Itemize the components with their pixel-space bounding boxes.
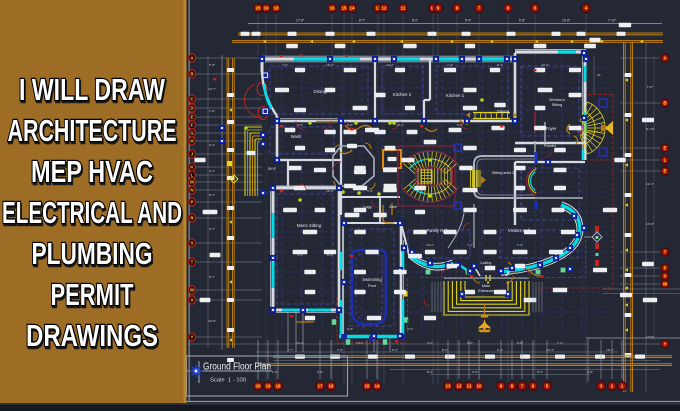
- svg-text:6′-8″: 6′-8″: [519, 19, 526, 23]
- svg-text:10′-2″: 10′-2″: [326, 63, 334, 67]
- svg-text:ARCHITECTURE: ARCHITECTURE: [8, 113, 177, 148]
- svg-text:8: 8: [511, 384, 514, 389]
- svg-text:Dining: Dining: [497, 109, 510, 114]
- svg-text:6′-8″: 6′-8″: [347, 123, 353, 127]
- svg-text:9′-4″: 9′-4″: [392, 348, 398, 352]
- svg-text:10′-2″: 10′-2″: [356, 341, 364, 345]
- svg-text:8′-4″: 8′-4″: [427, 370, 433, 374]
- svg-text:8′-4″: 8′-4″: [327, 253, 333, 257]
- svg-text:13′-7″: 13′-7″: [208, 87, 216, 91]
- svg-text:Ground Floor Plan: Ground Floor Plan: [203, 362, 271, 373]
- svg-text:17′-8″: 17′-8″: [296, 19, 305, 23]
- svg-text:15: 15: [341, 6, 347, 11]
- svg-text:12: 12: [381, 6, 387, 11]
- svg-text:18: 18: [275, 384, 281, 389]
- svg-text:11: 11: [401, 6, 406, 11]
- svg-text:16′-8″: 16′-8″: [562, 19, 571, 23]
- svg-text:6′-8″: 6′-8″: [517, 341, 523, 345]
- svg-text:10: 10: [476, 384, 482, 389]
- svg-text:D: D: [190, 106, 193, 111]
- svg-text:H: H: [190, 139, 193, 144]
- svg-text:6′-4″: 6′-4″: [497, 348, 503, 352]
- svg-text:T: T: [191, 260, 194, 265]
- svg-text:1′-2″: 1′-2″: [272, 370, 278, 374]
- svg-text:Entrance 2: Entrance 2: [582, 130, 599, 134]
- svg-text:8: 8: [456, 6, 459, 11]
- svg-text:3′-6″: 3′-6″: [467, 341, 473, 345]
- svg-text:7: 7: [521, 384, 524, 389]
- svg-text:7′-10″: 7′-10″: [608, 19, 617, 23]
- svg-text:5′-8″: 5′-8″: [367, 189, 373, 193]
- svg-text:4: 4: [585, 6, 588, 11]
- svg-text:16: 16: [329, 6, 335, 11]
- svg-text:F: F: [191, 123, 194, 128]
- svg-text:5: 5: [546, 384, 549, 389]
- svg-text:Y: Y: [191, 335, 194, 340]
- svg-text:13′-8″: 13′-8″: [646, 335, 654, 339]
- svg-text:Visitors Hall: Visitors Hall: [508, 228, 530, 233]
- svg-text:Main: Main: [482, 284, 490, 288]
- svg-text:Kitchen 1: Kitchen 1: [446, 93, 465, 98]
- svg-text:8′-4″: 8′-4″: [497, 63, 503, 67]
- svg-text:MEP HVAC: MEP HVAC: [31, 154, 153, 189]
- svg-text:7′-2″: 7′-2″: [517, 243, 523, 247]
- svg-text:10′-8″: 10′-8″: [208, 319, 216, 323]
- svg-text:13′-8″: 13′-8″: [646, 222, 654, 226]
- svg-text:L: L: [664, 158, 667, 163]
- svg-text:W: W: [663, 282, 668, 287]
- svg-text:12′-4″: 12′-4″: [646, 182, 654, 186]
- svg-text:S: S: [191, 241, 194, 246]
- svg-text:L: L: [191, 173, 194, 178]
- svg-text:8′-7″: 8′-7″: [209, 275, 215, 279]
- svg-text:7′-2″: 7′-2″: [282, 63, 288, 67]
- svg-text:15: 15: [364, 384, 370, 389]
- svg-text:16′-4″: 16′-4″: [606, 348, 614, 352]
- svg-text:14: 14: [349, 6, 355, 11]
- svg-text:Powder: Powder: [544, 144, 557, 148]
- svg-text:19: 19: [265, 384, 271, 389]
- svg-text:3′-8″: 3′-8″: [472, 370, 478, 374]
- svg-text:10′-2″: 10′-2″: [296, 341, 304, 345]
- svg-text:Lobby: Lobby: [481, 260, 492, 265]
- svg-text:18: 18: [273, 6, 279, 11]
- svg-text:Kitchen 2: Kitchen 2: [393, 92, 412, 97]
- svg-text:14: 14: [374, 384, 380, 389]
- svg-text:2: 2: [611, 384, 614, 389]
- svg-text:Scale 1 - 100: Scale 1 - 100: [210, 378, 246, 384]
- svg-text:Wash: Wash: [291, 134, 302, 139]
- svg-text:6: 6: [532, 384, 535, 389]
- svg-text:7′-2″: 7′-2″: [467, 243, 473, 247]
- svg-text:8′-2″: 8′-2″: [442, 348, 448, 352]
- svg-text:5′-4″: 5′-4″: [465, 19, 472, 23]
- svg-text:1: 1: [621, 384, 624, 389]
- svg-text:3′-6″: 3′-6″: [297, 123, 303, 127]
- svg-text:Entrance: Entrance: [478, 289, 493, 293]
- svg-text:3′-2″: 3′-2″: [209, 169, 215, 173]
- svg-text:9: 9: [500, 384, 503, 389]
- svg-text:10′-2″: 10′-2″: [326, 189, 334, 193]
- svg-text:17: 17: [317, 384, 323, 389]
- svg-text:7′-2″: 7′-2″: [337, 348, 343, 352]
- svg-text:12: 12: [456, 384, 462, 389]
- svg-text:F: F: [664, 266, 667, 271]
- svg-text:ELECTRICAL AND: ELECTRICAL AND: [2, 195, 182, 230]
- svg-text:34′: 34′: [597, 73, 601, 77]
- svg-text:6: 6: [507, 6, 510, 11]
- svg-text:I WILL DRAW: I WILL DRAW: [19, 72, 166, 107]
- svg-text:3′-6″: 3′-6″: [427, 341, 433, 345]
- svg-text:PERMIT: PERMIT: [51, 277, 134, 312]
- svg-text:10′-2″: 10′-2″: [386, 63, 394, 67]
- svg-text:Foyer: Foyer: [546, 126, 557, 131]
- svg-text:Lugg.: Lugg.: [364, 205, 373, 209]
- svg-text:1′-8″: 1′-8″: [209, 109, 215, 113]
- svg-text:11: 11: [467, 384, 472, 389]
- svg-text:10′-2″: 10′-2″: [426, 243, 434, 247]
- svg-text:20: 20: [255, 384, 261, 389]
- svg-text:9′-4″: 9′-4″: [209, 143, 215, 147]
- svg-text:10′-2″: 10′-2″: [396, 123, 404, 127]
- svg-text:3′-6″: 3′-6″: [297, 253, 303, 257]
- svg-text:7′-2″: 7′-2″: [447, 63, 453, 67]
- svg-text:E: E: [191, 115, 194, 120]
- svg-text:X: X: [191, 298, 194, 303]
- svg-text:9: 9: [437, 6, 440, 11]
- svg-text:Y: Y: [663, 342, 666, 347]
- svg-text:7′-2″: 7′-2″: [557, 341, 563, 345]
- svg-text:6′-8″: 6′-8″: [347, 327, 353, 331]
- svg-text:8′-7″: 8′-7″: [209, 193, 215, 197]
- svg-text:11′-10″: 11′-10″: [645, 127, 654, 131]
- svg-text:PLUMBING: PLUMBING: [32, 236, 153, 271]
- svg-text:GH 9″: GH 9″: [268, 167, 277, 171]
- svg-text:E: E: [663, 146, 666, 151]
- svg-text:16: 16: [328, 384, 334, 389]
- svg-text:Pool: Pool: [368, 283, 376, 288]
- svg-text:5′-8″: 5′-8″: [457, 123, 463, 127]
- svg-text:Mens Sitting: Mens Sitting: [297, 223, 322, 228]
- svg-text:3: 3: [600, 384, 603, 389]
- svg-text:7: 7: [478, 6, 481, 11]
- svg-text:5: 5: [534, 6, 537, 11]
- svg-text:Swimming: Swimming: [362, 277, 382, 282]
- svg-text:Family Hall: Family Hall: [427, 228, 448, 233]
- svg-text:10′-4″: 10′-4″: [546, 348, 554, 352]
- svg-text:Sitting area 2: Sitting area 2: [492, 171, 514, 175]
- svg-text:9′-8″: 9′-8″: [587, 370, 593, 374]
- svg-text:T: T: [664, 250, 667, 255]
- svg-text:8′-7″: 8′-7″: [359, 19, 366, 23]
- svg-text:E: E: [663, 169, 666, 174]
- svg-text:M: M: [190, 180, 194, 185]
- svg-text:19: 19: [263, 6, 269, 11]
- svg-text:7′-9″″: 7′-9″″: [646, 85, 653, 89]
- svg-text:DRAWINGS: DRAWINGS: [26, 318, 158, 353]
- svg-text:3′-6″: 3′-6″: [407, 327, 413, 331]
- svg-text:5′-2″: 5′-2″: [537, 370, 543, 374]
- svg-text:13: 13: [445, 384, 451, 389]
- svg-text:B: B: [190, 72, 193, 77]
- svg-text:9′-7″: 9′-7″: [209, 227, 215, 231]
- svg-text:10′-2″: 10′-2″: [541, 63, 549, 67]
- svg-text:N: N: [190, 188, 193, 193]
- svg-text:Bath: Bath: [389, 205, 396, 209]
- svg-text:5′-8″: 5′-8″: [209, 63, 215, 67]
- svg-text:20: 20: [255, 6, 261, 11]
- svg-text:Sitting: Sitting: [552, 103, 563, 107]
- svg-text:Dining: Dining: [313, 89, 326, 94]
- svg-text:Women’s: Women’s: [549, 98, 565, 102]
- svg-text:P: P: [191, 200, 194, 205]
- svg-text:8′-2″: 8′-2″: [412, 19, 419, 23]
- svg-text:G: G: [190, 131, 194, 136]
